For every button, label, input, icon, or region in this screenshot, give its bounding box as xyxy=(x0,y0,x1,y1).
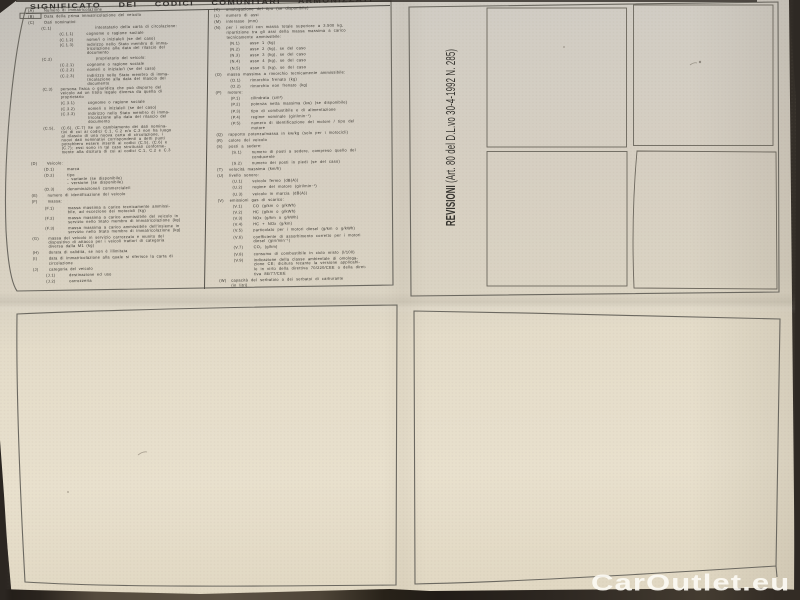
svg-text:CarOutlet.eu: CarOutlet.eu xyxy=(591,569,790,595)
